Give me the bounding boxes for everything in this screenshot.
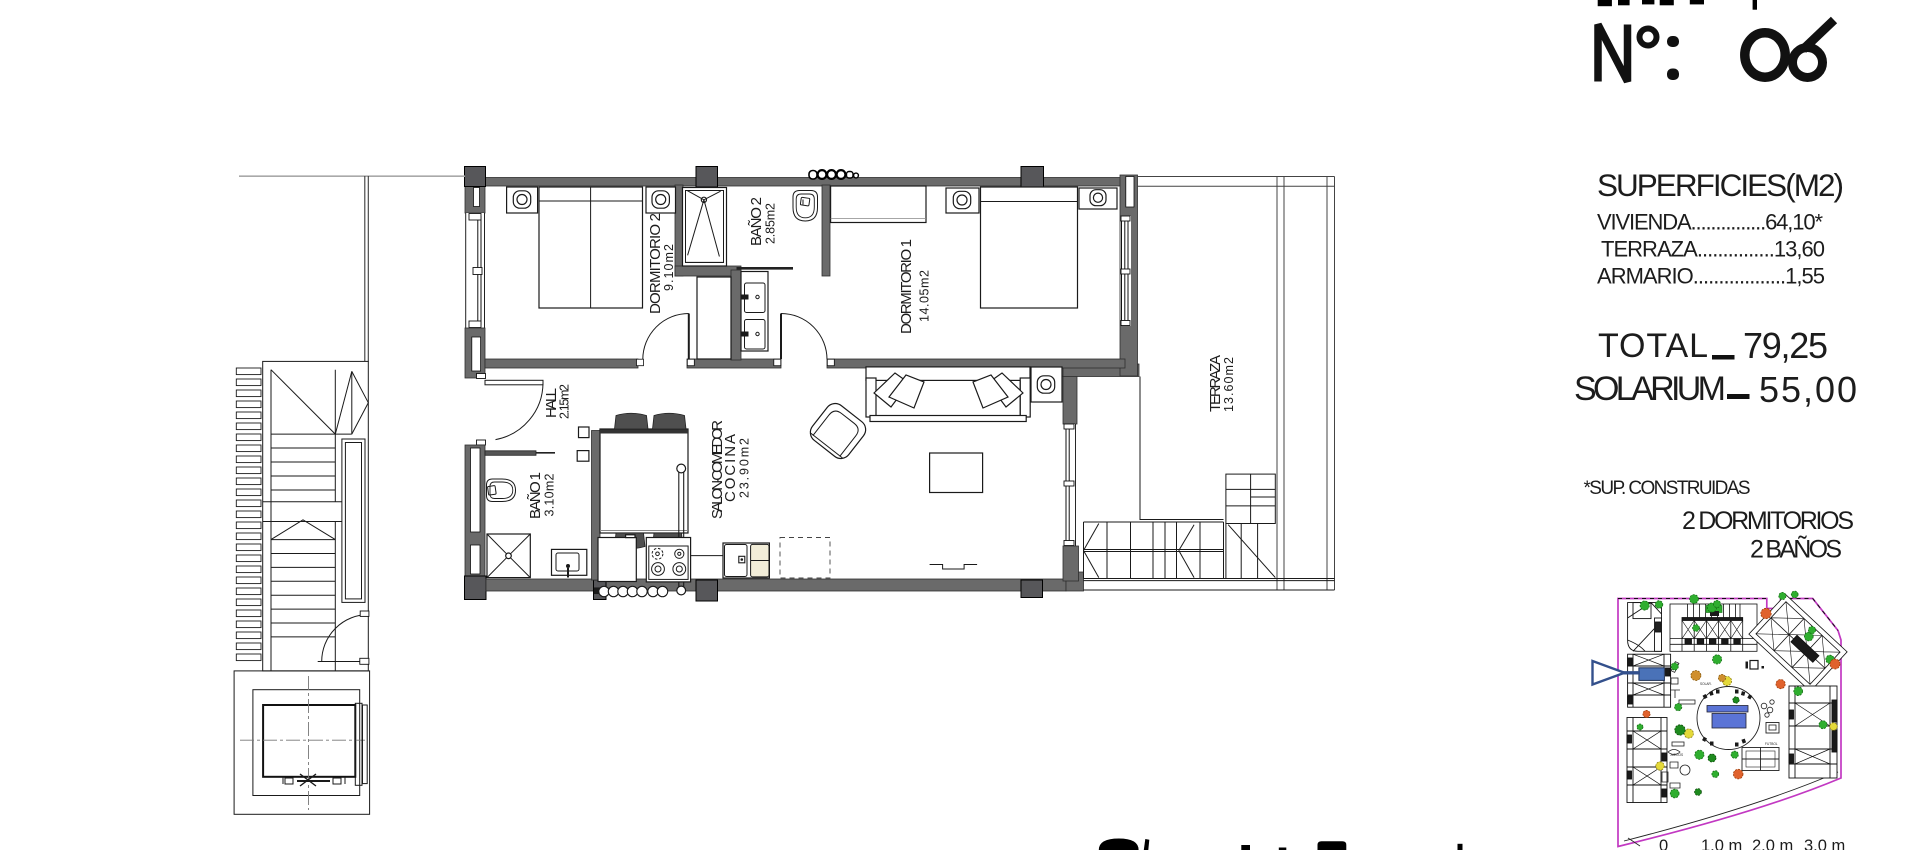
svg-text:9.10m2: 9.10m2	[662, 244, 676, 291]
svg-text:*SUP. CONSTRUIDAS: *SUP. CONSTRUIDAS	[1584, 478, 1751, 499]
svg-text:14.05m2: 14.05m2	[918, 270, 932, 322]
svg-text:SUPERFICIES(M2): SUPERFICIES(M2)	[1597, 167, 1844, 203]
svg-text:SOLAR.: SOLAR.	[1700, 682, 1712, 686]
svg-text:ARMARIO..................1,55: ARMARIO..................1,55	[1597, 264, 1825, 289]
svg-text:55,00: 55,00	[1759, 369, 1857, 410]
svg-text:BAÑO 1: BAÑO 1	[527, 472, 544, 519]
svg-text:0: 0	[1659, 837, 1668, 850]
svg-text:BAÑO 2: BAÑO 2	[748, 197, 765, 246]
svg-text:1.0 m: 1.0 m	[1701, 837, 1742, 850]
svg-text:COCINA: COCINA	[722, 434, 739, 502]
svg-text:2 BAÑOS: 2 BAÑOS	[1750, 535, 1842, 564]
svg-text:3.10m2: 3.10m2	[543, 473, 557, 516]
svg-text:2 DORMITORIOS: 2 DORMITORIOS	[1682, 507, 1854, 535]
svg-text:3.0 m: 3.0 m	[1804, 837, 1845, 850]
svg-text:79,25: 79,25	[1743, 325, 1828, 366]
svg-text:TERRAZA...............13,60: TERRAZA...............13,60	[1601, 237, 1825, 262]
svg-text:2.15m2: 2.15m2	[558, 384, 572, 419]
svg-text:FUTBOL: FUTBOL	[1765, 742, 1778, 746]
svg-text:VIVIENDA...............64,10*: VIVIENDA...............64,10*	[1597, 210, 1823, 235]
svg-text:2.0 m: 2.0 m	[1752, 837, 1793, 850]
svg-text:JUEGOS: JUEGOS	[1670, 753, 1683, 757]
svg-text:SOLARIUM: SOLARIUM	[1574, 370, 1726, 408]
svg-text:DORMITORIO 1: DORMITORIO 1	[898, 239, 915, 334]
svg-text:TOTAL: TOTAL	[1598, 327, 1708, 365]
svg-text:2.85m2: 2.85m2	[764, 203, 778, 244]
